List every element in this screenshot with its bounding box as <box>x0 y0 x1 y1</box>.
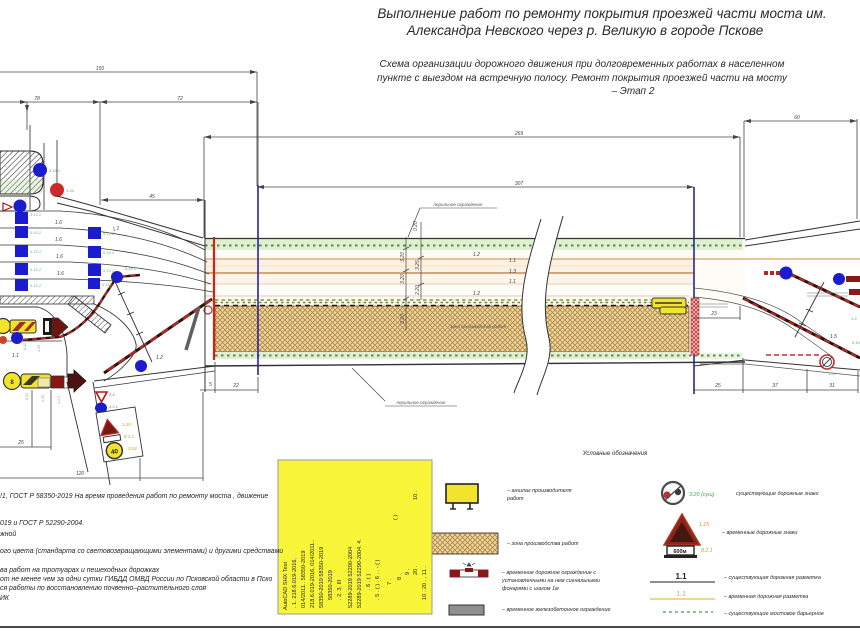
svg-text:22: 22 <box>232 383 239 389</box>
svg-text:3.20: 3.20 <box>400 274 406 284</box>
svg-text:269: 269 <box>514 131 524 137</box>
svg-text:. 2. 3. III: . 2. 3. III <box>337 579 343 600</box>
svg-text:– существующая дорожная разме: – существующая дорожная разметка <box>723 575 821 581</box>
svg-text:1.1: 1.1 <box>676 591 686 598</box>
svg-text:1.6: 1.6 <box>55 220 62 226</box>
svg-text:– временное железобетонное ог: – временное железобетонное ограждение <box>501 607 610 613</box>
svg-text:– временная дорожная разметка: – временная дорожная разметка <box>723 594 808 600</box>
svg-text:8.22: 8.22 <box>23 343 27 350</box>
svg-text:перильное ограждение: перильное ограждение <box>397 400 446 405</box>
svg-text:1.2: 1.2 <box>473 291 480 297</box>
svg-text:– существующие мостовое барье: – существующие мостовое барьерное <box>723 611 824 617</box>
svg-text:72: 72 <box>177 96 183 102</box>
svg-text:8 .: 8 . <box>397 573 403 580</box>
svg-text:Александра Невского через р. В: Александра Невского через р. Великую в г… <box>406 23 764 38</box>
svg-text:014/2011.. 58350-2019: 014/2011.. 58350-2019 <box>301 551 307 608</box>
svg-text:– аншлаг производителя: – аншлаг производителя <box>506 488 572 494</box>
svg-text:1.6: 1.6 <box>55 237 62 243</box>
svg-text:– временное дорожное огражден: – временное дорожное ограждение с <box>501 570 596 576</box>
svg-text:5.15.2: 5.15.2 <box>103 231 115 236</box>
svg-text:7 .: 7 . <box>387 578 393 585</box>
svg-text:5.15.2: 5.15.2 <box>30 283 42 288</box>
svg-text:5.15.2: 5.15.2 <box>30 267 42 272</box>
svg-text:1.1: 1.1 <box>509 258 516 264</box>
svg-text:от не менее чем за одни сутки: от не менее чем за одни сутки ГИБДД ОМВД… <box>0 575 272 583</box>
svg-text:1.1: 1.1 <box>12 353 19 359</box>
svg-text:Условные обозначения: Условные обозначения <box>582 451 648 457</box>
svg-text:25: 25 <box>714 383 721 389</box>
svg-text:3.25: 3.25 <box>415 260 421 270</box>
svg-text:2.4: 2.4 <box>108 392 115 397</box>
svg-text:Зона производства работ: Зона производства работ <box>450 324 507 329</box>
svg-text:5.15.2: 5.15.2 <box>30 230 42 235</box>
svg-text:4.2.1: 4.2.1 <box>109 404 118 409</box>
svg-text:ся работы по восстановлению по: ся работы по восстановлению почвенно–рас… <box>0 584 206 592</box>
svg-text:1.25: 1.25 <box>122 422 131 427</box>
svg-text:8.2.1: 8.2.1 <box>701 548 713 554</box>
svg-text:218.6.019-2016, 014/2011..: 218.6.019-2016, 014/2011.. <box>310 539 316 608</box>
svg-text:5.19.1: 5.19.1 <box>49 168 60 173</box>
svg-text:23: 23 <box>710 311 717 317</box>
svg-text:. 1. 218.6.019-2016,: . 1. 218.6.019-2016, <box>292 557 298 608</box>
svg-text:фонарями с шагом 1м: фонарями с шагом 1м <box>502 586 559 592</box>
svg-text:ого цвета (стандарта со светов: ого цвета (стандарта со световозвращающи… <box>0 547 283 555</box>
svg-text:. 6 . ( ): . 6 . ( ) <box>366 574 372 590</box>
svg-text:600м: 600м <box>673 549 686 555</box>
svg-text:3.20: 3.20 <box>400 252 406 262</box>
svg-text:40: 40 <box>110 448 119 456</box>
svg-text:. 5 . ( ) . 6 . . - ( ): . 5 . ( ) . 6 . . - ( ) <box>375 559 381 600</box>
svg-text:20 .: 20 . <box>413 565 419 575</box>
svg-text:!1, ГОСТ Р 58350-2019 На врем: !1, ГОСТ Р 58350-2019 На время проведени… <box>0 492 268 500</box>
svg-text:10 . 20 . , 11 .: 10 . 20 . , 11 . <box>422 566 428 600</box>
svg-text:307: 307 <box>515 181 524 187</box>
svg-text:установленными на нем сигнальн: установленными на нем сигнальными <box>501 578 600 584</box>
svg-text:3.20 (сущ): 3.20 (сущ) <box>689 492 715 498</box>
svg-text:5.15.2: 5.15.2 <box>103 250 115 255</box>
svg-text:ва работ на тротуарах и пешехо: ва работ на тротуарах и пешеходных дорож… <box>0 566 160 574</box>
svg-text:AutoCAD SHX Text: AutoCAD SHX Text <box>283 561 289 610</box>
svg-text:1.25: 1.25 <box>699 522 709 528</box>
svg-text:120: 120 <box>76 471 85 477</box>
svg-text:1.6: 1.6 <box>57 271 64 277</box>
svg-text:1.2: 1.2 <box>473 252 480 258</box>
svg-text:60: 60 <box>794 115 800 121</box>
svg-text:52289-2019 52290-2004: 52289-2019 52290-2004 <box>348 547 354 608</box>
svg-text:1.6: 1.6 <box>56 254 63 260</box>
svg-text:5.15.2: 5.15.2 <box>30 212 42 217</box>
svg-text:жной: жной <box>0 530 16 538</box>
svg-text:5.15.2: 5.15.2 <box>30 249 42 254</box>
svg-text:перильное ограждение: перильное ограждение <box>434 202 483 207</box>
svg-text:78: 78 <box>34 96 40 102</box>
svg-text:52289-2019 52290-2004. 4.: 52289-2019 52290-2004. 4. <box>357 539 363 608</box>
svg-text:– временные дорожные знаки: – временные дорожные знаки <box>721 530 797 536</box>
svg-text:019 и ГОСТ Р 52290-2004.: 019 и ГОСТ Р 52290-2004. <box>0 520 84 527</box>
svg-text:5.15.2: 5.15.2 <box>103 268 115 273</box>
svg-text:37: 37 <box>772 383 778 389</box>
svg-text:– зона производства работ: – зона производства работ <box>506 541 579 547</box>
svg-text:2.20: 2.20 <box>415 285 421 296</box>
svg-text:1.25: 1.25 <box>41 395 45 402</box>
svg-text:1.5: 1.5 <box>851 316 857 321</box>
svg-text:Выполнение работ по ремонту по: Выполнение работ по ремонту покрытия про… <box>377 6 826 21</box>
svg-text:8.22: 8.22 <box>25 393 29 400</box>
svg-text:5.19: 5.19 <box>852 340 860 345</box>
svg-text:31: 31 <box>829 383 835 389</box>
svg-text:Схема организации дорожного дв: Схема организации дорожного движения при… <box>380 58 785 70</box>
svg-text:5: 5 <box>209 382 212 388</box>
svg-text:10 .: 10 . <box>413 490 419 500</box>
svg-text:3.20: 3.20 <box>400 314 406 324</box>
svg-text:9 .: 9 . <box>405 568 411 575</box>
svg-text:– Этап 2: – Этап 2 <box>611 86 655 97</box>
svg-text:1.3: 1.3 <box>509 269 516 275</box>
svg-text:1.1: 1.1 <box>509 279 516 285</box>
svg-text:3.24: 3.24 <box>66 188 75 193</box>
svg-text:3.20: 3.20 <box>828 371 837 376</box>
svg-text:0.20: 0.20 <box>413 221 419 231</box>
svg-text:1.25: 1.25 <box>37 345 41 352</box>
svg-text:45: 45 <box>149 194 155 200</box>
svg-text:1.5: 1.5 <box>830 334 837 340</box>
svg-text:8.1.1: 8.1.1 <box>124 434 135 439</box>
svg-text:ИК: ИК <box>0 595 10 602</box>
svg-text:1.2: 1.2 <box>156 355 163 361</box>
svg-text:3.24: 3.24 <box>128 446 137 451</box>
svg-text:работ: работ <box>506 496 524 502</box>
svg-text:25: 25 <box>17 440 24 446</box>
svg-text:( ): ( ) <box>393 515 399 520</box>
svg-text:пункте с выездом на встречную: пункте с выездом на встречную полосу. Ре… <box>377 73 788 84</box>
svg-text:58350-2019 58350-2019: 58350-2019 58350-2019 <box>319 547 325 608</box>
svg-text:4.2.1: 4.2.1 <box>57 396 61 404</box>
svg-text:150: 150 <box>96 66 105 72</box>
svg-text:1.1: 1.1 <box>675 572 687 581</box>
svg-text:58350-2019: 58350-2019 <box>328 570 334 600</box>
svg-text:существующие дорожные знаки: существующие дорожные знаки <box>736 491 819 497</box>
svg-text:5.19.1: 5.19.1 <box>125 266 136 271</box>
